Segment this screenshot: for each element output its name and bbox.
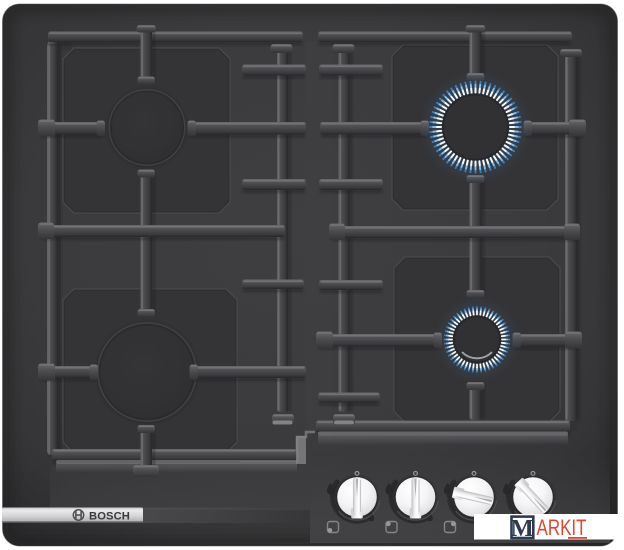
svg-text:M: M (511, 515, 534, 542)
svg-text:ARKIT: ARKIT (537, 515, 587, 540)
svg-text:BOSCH: BOSCH (89, 510, 130, 522)
